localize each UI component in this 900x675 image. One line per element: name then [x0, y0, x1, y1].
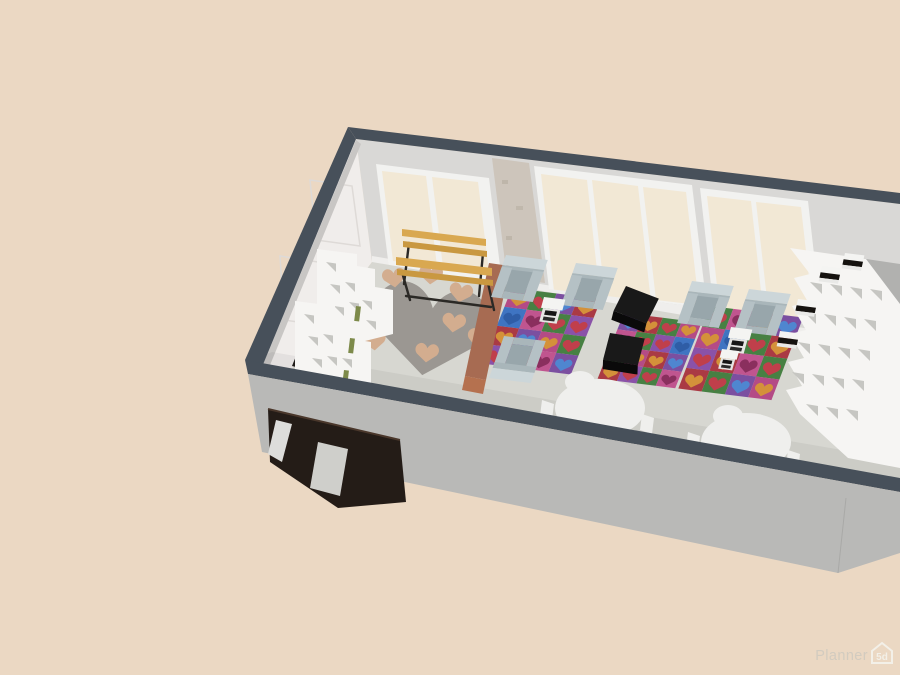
shelf-box[interactable] — [819, 266, 842, 284]
pillar-speckle — [502, 180, 508, 184]
pillar-speckle — [516, 206, 523, 210]
planner-badge-text: 5d — [876, 652, 888, 663]
pillar-speckle — [506, 236, 512, 240]
window-group-middle[interactable] — [534, 166, 707, 315]
planner-logo-text: Planner — [815, 648, 868, 664]
shelf-box[interactable] — [777, 331, 800, 349]
planner-3d-viewport: Planner 5d — [0, 0, 900, 675]
shelf-box[interactable] — [842, 253, 865, 271]
shelf-box[interactable] — [795, 299, 818, 317]
scene-svg: Planner 5d — [0, 0, 900, 675]
